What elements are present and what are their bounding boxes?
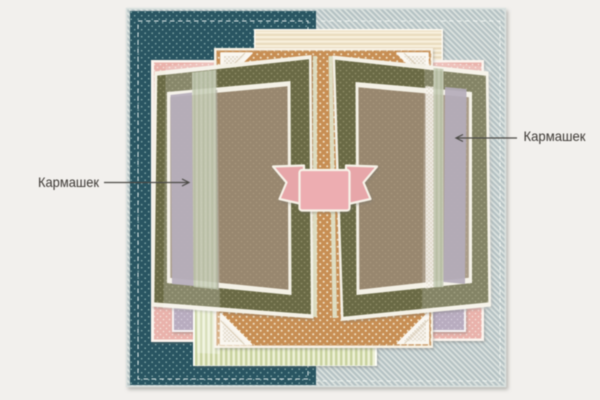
svg-text:Кармашек: Кармашек [38, 174, 100, 190]
svg-text:Кармашек: Кармашек [524, 128, 587, 144]
